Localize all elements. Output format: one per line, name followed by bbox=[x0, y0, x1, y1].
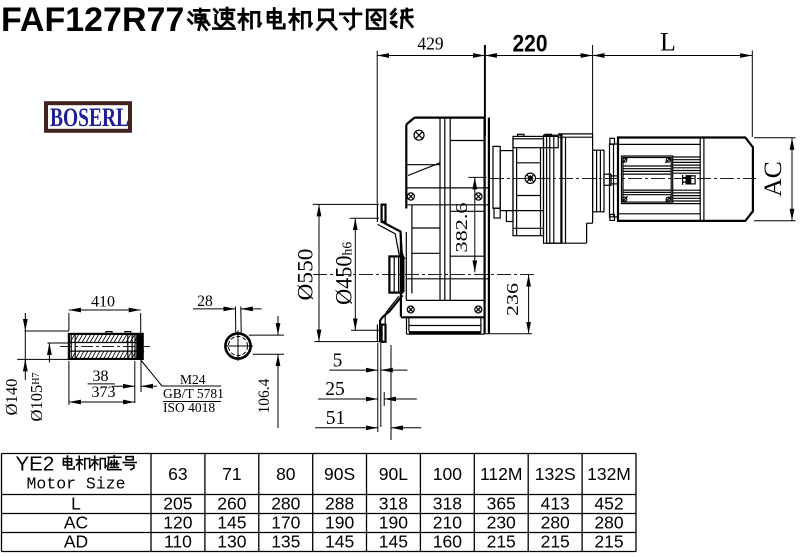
svg-text:63: 63 bbox=[168, 464, 187, 484]
svg-text:236: 236 bbox=[503, 283, 522, 316]
svg-text:28: 28 bbox=[197, 293, 213, 310]
svg-text:318: 318 bbox=[433, 494, 462, 514]
svg-text:BOSERL: BOSERL bbox=[50, 102, 129, 132]
svg-text:280: 280 bbox=[594, 513, 623, 533]
svg-text:GB/T 5781: GB/T 5781 bbox=[163, 386, 224, 401]
svg-text:170: 170 bbox=[271, 513, 300, 533]
svg-text:145: 145 bbox=[217, 513, 246, 533]
svg-text:FAF127R77: FAF127R77 bbox=[1, 1, 184, 39]
svg-text:215: 215 bbox=[594, 532, 623, 552]
svg-text:112M: 112M bbox=[480, 464, 522, 484]
svg-text:373: 373 bbox=[92, 384, 116, 401]
svg-text:215: 215 bbox=[487, 532, 516, 552]
svg-text:190: 190 bbox=[325, 513, 354, 533]
svg-text:205: 205 bbox=[163, 494, 192, 514]
svg-text:AC: AC bbox=[758, 161, 787, 196]
svg-text:110: 110 bbox=[164, 532, 192, 552]
svg-text:215: 215 bbox=[541, 532, 570, 552]
svg-text:145: 145 bbox=[325, 532, 354, 552]
svg-text:260: 260 bbox=[217, 494, 246, 514]
svg-text:YE2: YE2 bbox=[16, 453, 55, 476]
svg-text:382.6: 382.6 bbox=[452, 203, 471, 253]
svg-text:210: 210 bbox=[433, 513, 462, 533]
svg-text:90L: 90L bbox=[379, 464, 408, 484]
svg-text:AD: AD bbox=[64, 532, 88, 552]
svg-text:25: 25 bbox=[325, 379, 345, 400]
svg-text:230: 230 bbox=[487, 513, 516, 533]
svg-text:160: 160 bbox=[433, 532, 462, 552]
svg-text:413: 413 bbox=[541, 494, 570, 514]
svg-text:71: 71 bbox=[222, 464, 241, 484]
svg-text:51: 51 bbox=[326, 408, 346, 429]
svg-text:132M: 132M bbox=[587, 464, 631, 484]
svg-text:190: 190 bbox=[379, 513, 408, 533]
svg-text:132S: 132S bbox=[535, 464, 576, 484]
svg-text:130: 130 bbox=[217, 532, 246, 552]
svg-text:Ø105H7: Ø105H7 bbox=[27, 373, 46, 422]
svg-text:145: 145 bbox=[379, 532, 408, 552]
svg-text:38: 38 bbox=[93, 368, 109, 385]
svg-text:429: 429 bbox=[417, 34, 444, 54]
svg-text:106.4: 106.4 bbox=[256, 378, 273, 413]
svg-text:AC: AC bbox=[64, 513, 88, 533]
svg-text:318: 318 bbox=[379, 494, 408, 514]
svg-text:5: 5 bbox=[333, 351, 343, 372]
svg-text:L: L bbox=[71, 494, 81, 514]
svg-text:Ø450h6: Ø450h6 bbox=[332, 242, 357, 305]
svg-text:80: 80 bbox=[276, 464, 296, 484]
svg-text:280: 280 bbox=[541, 513, 570, 533]
svg-text:452: 452 bbox=[594, 494, 623, 514]
svg-text:L: L bbox=[660, 28, 676, 57]
svg-text:220: 220 bbox=[513, 31, 548, 58]
svg-text:Ø140: Ø140 bbox=[2, 379, 21, 416]
svg-text:M24: M24 bbox=[180, 372, 206, 387]
svg-text:120: 120 bbox=[163, 513, 192, 533]
svg-text:90S: 90S bbox=[324, 464, 355, 484]
svg-text:135: 135 bbox=[271, 532, 300, 552]
svg-text:365: 365 bbox=[487, 494, 516, 514]
svg-text:288: 288 bbox=[325, 494, 354, 514]
svg-text:100: 100 bbox=[433, 464, 462, 484]
svg-text:280: 280 bbox=[271, 494, 300, 514]
svg-text:ISO 4018: ISO 4018 bbox=[163, 400, 215, 415]
svg-text:Motor Size: Motor Size bbox=[26, 475, 125, 494]
svg-text:410: 410 bbox=[91, 294, 115, 311]
